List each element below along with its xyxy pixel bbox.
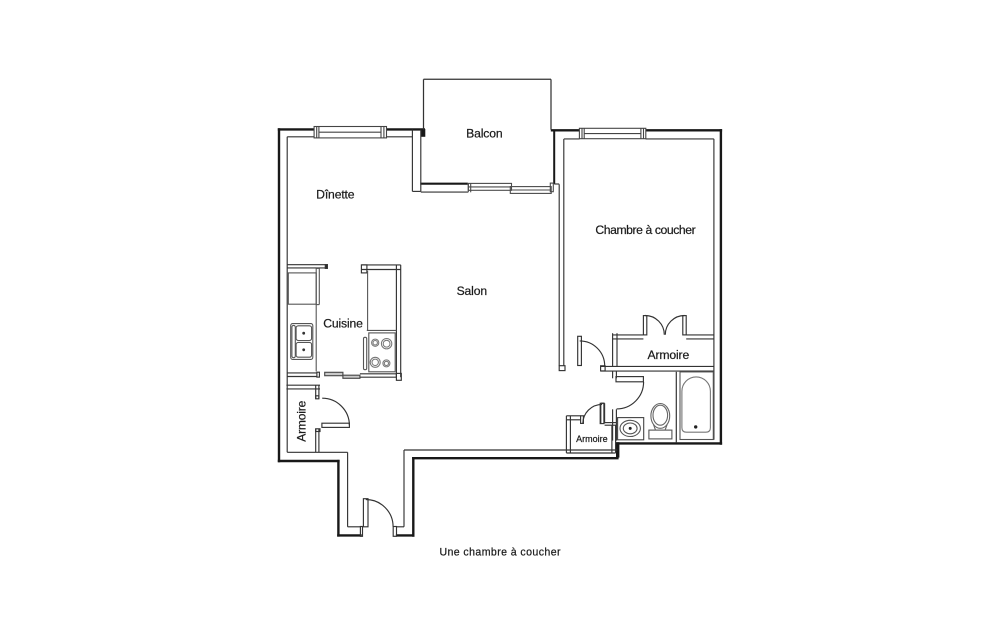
svg-text:Salon: Salon	[457, 284, 487, 298]
svg-text:Balcon: Balcon	[466, 126, 502, 140]
svg-text:Dînette: Dînette	[316, 188, 355, 202]
svg-text:Armoire: Armoire	[576, 434, 608, 444]
svg-text:Armoire: Armoire	[294, 400, 308, 441]
svg-text:Chambre à coucher: Chambre à coucher	[595, 223, 695, 237]
svg-text:Armoire: Armoire	[647, 348, 689, 362]
svg-text:Une chambre à coucher: Une chambre à coucher	[439, 547, 561, 559]
svg-text:Cuisine: Cuisine	[323, 316, 363, 330]
